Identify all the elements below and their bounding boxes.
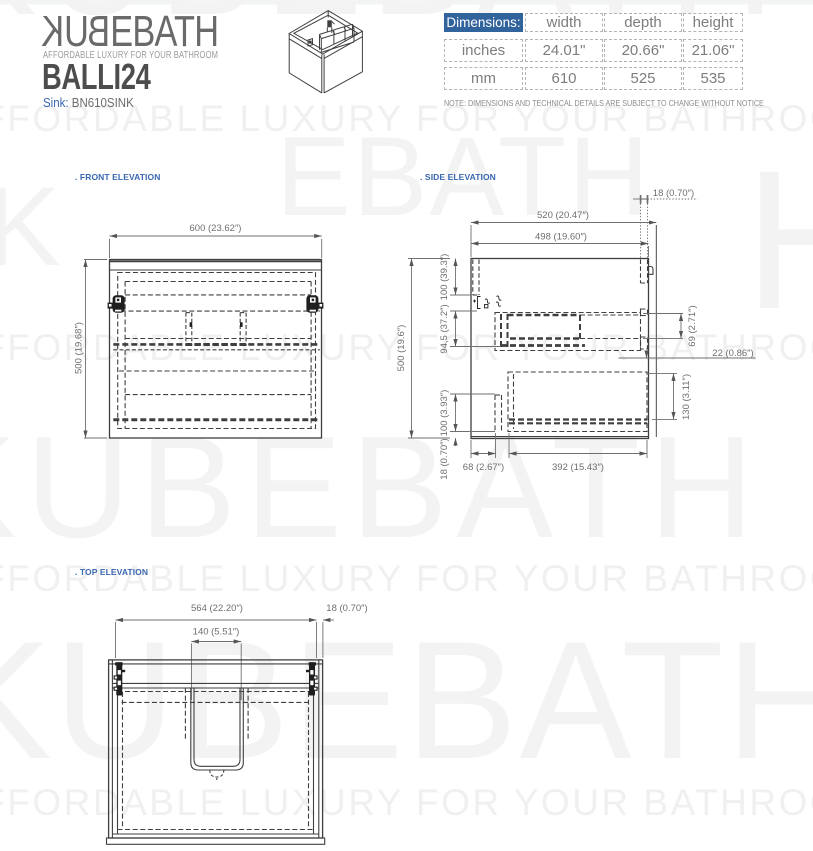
svg-text:100 (3.93″): 100 (3.93″) xyxy=(439,390,450,437)
svg-text:22 (0.86″): 22 (0.86″) xyxy=(712,348,753,359)
svg-text:18 (0.70″): 18 (0.70″) xyxy=(653,188,694,199)
svg-text:18 (0.70″): 18 (0.70″) xyxy=(439,438,450,479)
svg-text:498 (19.60″): 498 (19.60″) xyxy=(535,232,587,243)
svg-text:. TOP ELEVATION: . TOP ELEVATION xyxy=(75,567,148,577)
svg-text:. FRONT ELEVATION: . FRONT ELEVATION xyxy=(75,172,160,182)
svg-text:500 (19.6″): 500 (19.6″) xyxy=(396,325,407,372)
svg-text:. SIDE ELEVATION: . SIDE ELEVATION xyxy=(420,172,496,182)
svg-text:130 (3.11″): 130 (3.11″) xyxy=(681,374,692,420)
svg-text:94,5 (37.2″): 94,5 (37.2″) xyxy=(439,304,450,353)
svg-text:100 (39.3″): 100 (39.3″) xyxy=(439,254,450,301)
svg-text:564 (22.20″): 564 (22.20″) xyxy=(191,603,243,614)
svg-text:520 (20.47″): 520 (20.47″) xyxy=(537,210,589,221)
svg-text:500 (19.68″): 500 (19.68″) xyxy=(74,322,85,374)
svg-text:392 (15.43″): 392 (15.43″) xyxy=(552,462,604,473)
svg-text:140 (5.51″): 140 (5.51″) xyxy=(193,627,240,638)
svg-text:68 (2.67″): 68 (2.67″) xyxy=(463,462,504,473)
svg-text:18 (0.70″): 18 (0.70″) xyxy=(326,603,367,614)
svg-text:600 (23.62″): 600 (23.62″) xyxy=(190,223,242,234)
svg-text:69 (2.71″): 69 (2.71″) xyxy=(687,305,698,346)
